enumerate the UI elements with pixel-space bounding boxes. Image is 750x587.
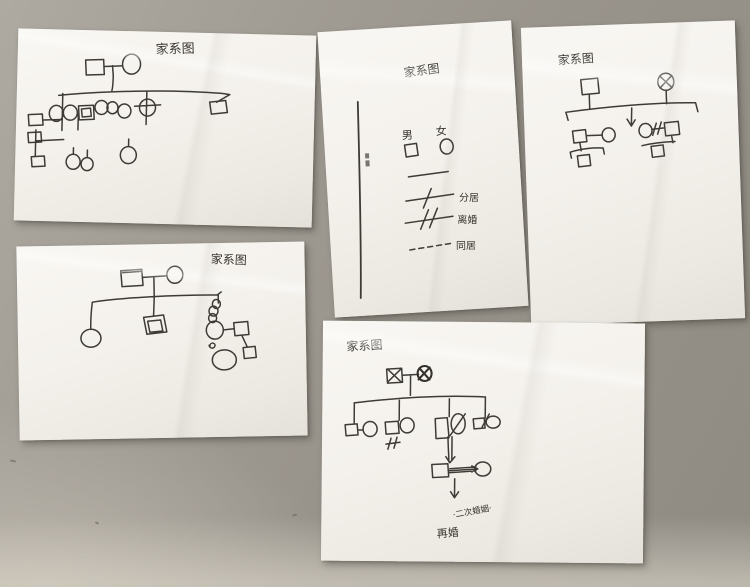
genogram-bottom-left: 家系图 bbox=[16, 242, 307, 441]
male-square bbox=[28, 114, 43, 126]
separated-line-symbol bbox=[405, 187, 454, 209]
cohabiting-line-symbol bbox=[410, 243, 451, 249]
legend-sheet: 家系图 男 女 分居 离婚 同居 bbox=[317, 20, 528, 317]
male-square bbox=[243, 346, 256, 358]
male-square-child bbox=[651, 145, 664, 157]
female-label: 女 bbox=[435, 123, 447, 138]
female-circle bbox=[206, 321, 223, 339]
paper-top-right: 家系图 bbox=[521, 20, 745, 325]
male-square-symbol bbox=[404, 143, 418, 157]
thick-union-arrow bbox=[449, 466, 478, 473]
gen1-couple bbox=[85, 53, 141, 76]
female-circle bbox=[639, 123, 652, 137]
cross-mark bbox=[134, 91, 161, 125]
female-circle bbox=[81, 329, 101, 347]
divorced-label: 离婚 bbox=[457, 213, 477, 226]
left-couple bbox=[569, 128, 616, 168]
female-circle bbox=[400, 418, 414, 433]
female-circle bbox=[167, 266, 183, 283]
divorce-slashes bbox=[652, 122, 664, 135]
down-arrow bbox=[451, 479, 459, 498]
male-square bbox=[31, 156, 45, 167]
genogram-top-left: 家系图 bbox=[14, 28, 317, 227]
genogram-top-right: 家系图 bbox=[521, 20, 745, 325]
male-label: 男 bbox=[402, 129, 414, 143]
deceased-male-square bbox=[387, 368, 403, 383]
handwritten-note-1: ·二次婚姻· bbox=[452, 503, 493, 521]
branch-2-couple-divorced bbox=[385, 400, 414, 449]
paper-bottom-left: 家系图 bbox=[16, 242, 307, 441]
female-circle bbox=[212, 350, 236, 370]
desk-photo: 家系图 bbox=[0, 0, 750, 587]
female-circle bbox=[81, 157, 93, 170]
page-title: 家系图 bbox=[211, 251, 248, 267]
female-circle bbox=[63, 105, 77, 120]
margin-smudge bbox=[365, 153, 370, 166]
marriage-line bbox=[224, 329, 234, 330]
gen2-cluster bbox=[28, 89, 161, 133]
male-square-child bbox=[577, 154, 590, 166]
descent-line bbox=[35, 130, 64, 157]
child-line bbox=[570, 142, 605, 158]
desk-scuff bbox=[292, 513, 297, 516]
female-circle bbox=[120, 146, 136, 163]
female-circle bbox=[118, 104, 131, 118]
male-square bbox=[345, 424, 363, 436]
descent-line bbox=[242, 336, 247, 347]
margin-vertical-line bbox=[349, 102, 370, 298]
descent-line bbox=[62, 107, 79, 130]
male-square bbox=[85, 59, 104, 75]
divorced-line-symbol bbox=[404, 207, 453, 230]
paper-legend: 家系图 男 女 分居 离婚 同居 bbox=[317, 20, 528, 317]
branch-1-couple bbox=[345, 403, 377, 437]
page-title: 家系图 bbox=[346, 337, 383, 354]
female-circle-symbol bbox=[440, 139, 454, 155]
marriage-line bbox=[402, 374, 418, 395]
male-square bbox=[435, 418, 449, 439]
male-square bbox=[121, 269, 143, 286]
sibling-line bbox=[90, 292, 222, 328]
divorce-mark bbox=[386, 437, 400, 449]
desk-scuff bbox=[95, 521, 99, 525]
cohabiting-label: 同居 bbox=[456, 240, 476, 252]
male-square bbox=[581, 78, 600, 95]
right-couple-divorced bbox=[639, 121, 681, 157]
index-male-double-square bbox=[144, 315, 167, 334]
male-square bbox=[664, 121, 679, 136]
male-square bbox=[209, 100, 227, 114]
gen3-row bbox=[27, 130, 137, 172]
branch-4-couple bbox=[473, 397, 500, 429]
marriage-line bbox=[587, 135, 602, 136]
deceased-parents bbox=[386, 366, 431, 396]
miscarriage-dot bbox=[209, 343, 215, 348]
marriage-line-symbol bbox=[408, 171, 448, 176]
separated-label: 分居 bbox=[459, 192, 479, 204]
female-circle bbox=[486, 416, 500, 428]
desk-scuff bbox=[10, 459, 16, 462]
female-circle bbox=[602, 128, 615, 142]
descent-line bbox=[112, 76, 113, 91]
female-circle bbox=[363, 421, 377, 436]
page-title: 家系图 bbox=[557, 50, 594, 67]
page-title: 家系图 bbox=[403, 60, 441, 80]
deceased-female-circle bbox=[658, 73, 675, 91]
male-square bbox=[234, 321, 249, 335]
branch-3-remarriage bbox=[432, 399, 492, 499]
page-title: 家系图 bbox=[155, 41, 194, 58]
male-square bbox=[432, 464, 449, 478]
index-male-double-square bbox=[78, 105, 94, 120]
female-circle bbox=[66, 154, 80, 169]
sibling-line bbox=[354, 395, 485, 404]
genogram-bottom-center: 家系图 bbox=[321, 321, 645, 564]
male-square bbox=[385, 421, 399, 434]
right-branch bbox=[206, 294, 257, 370]
female-circle bbox=[122, 54, 140, 74]
marriage-line bbox=[143, 276, 166, 297]
female-circle bbox=[95, 100, 108, 114]
female-circle-crossed bbox=[139, 99, 155, 116]
handwritten-note-2: 再婚 bbox=[436, 525, 459, 541]
paper-top-left: 家系图 bbox=[14, 28, 317, 227]
double-descent-arrow bbox=[446, 437, 455, 463]
male-square bbox=[572, 130, 586, 143]
marriage-line bbox=[104, 66, 121, 76]
paper-bottom-center: 家系图 bbox=[321, 321, 645, 564]
deceased-female-circle bbox=[418, 366, 432, 381]
down-arrow bbox=[627, 108, 636, 126]
